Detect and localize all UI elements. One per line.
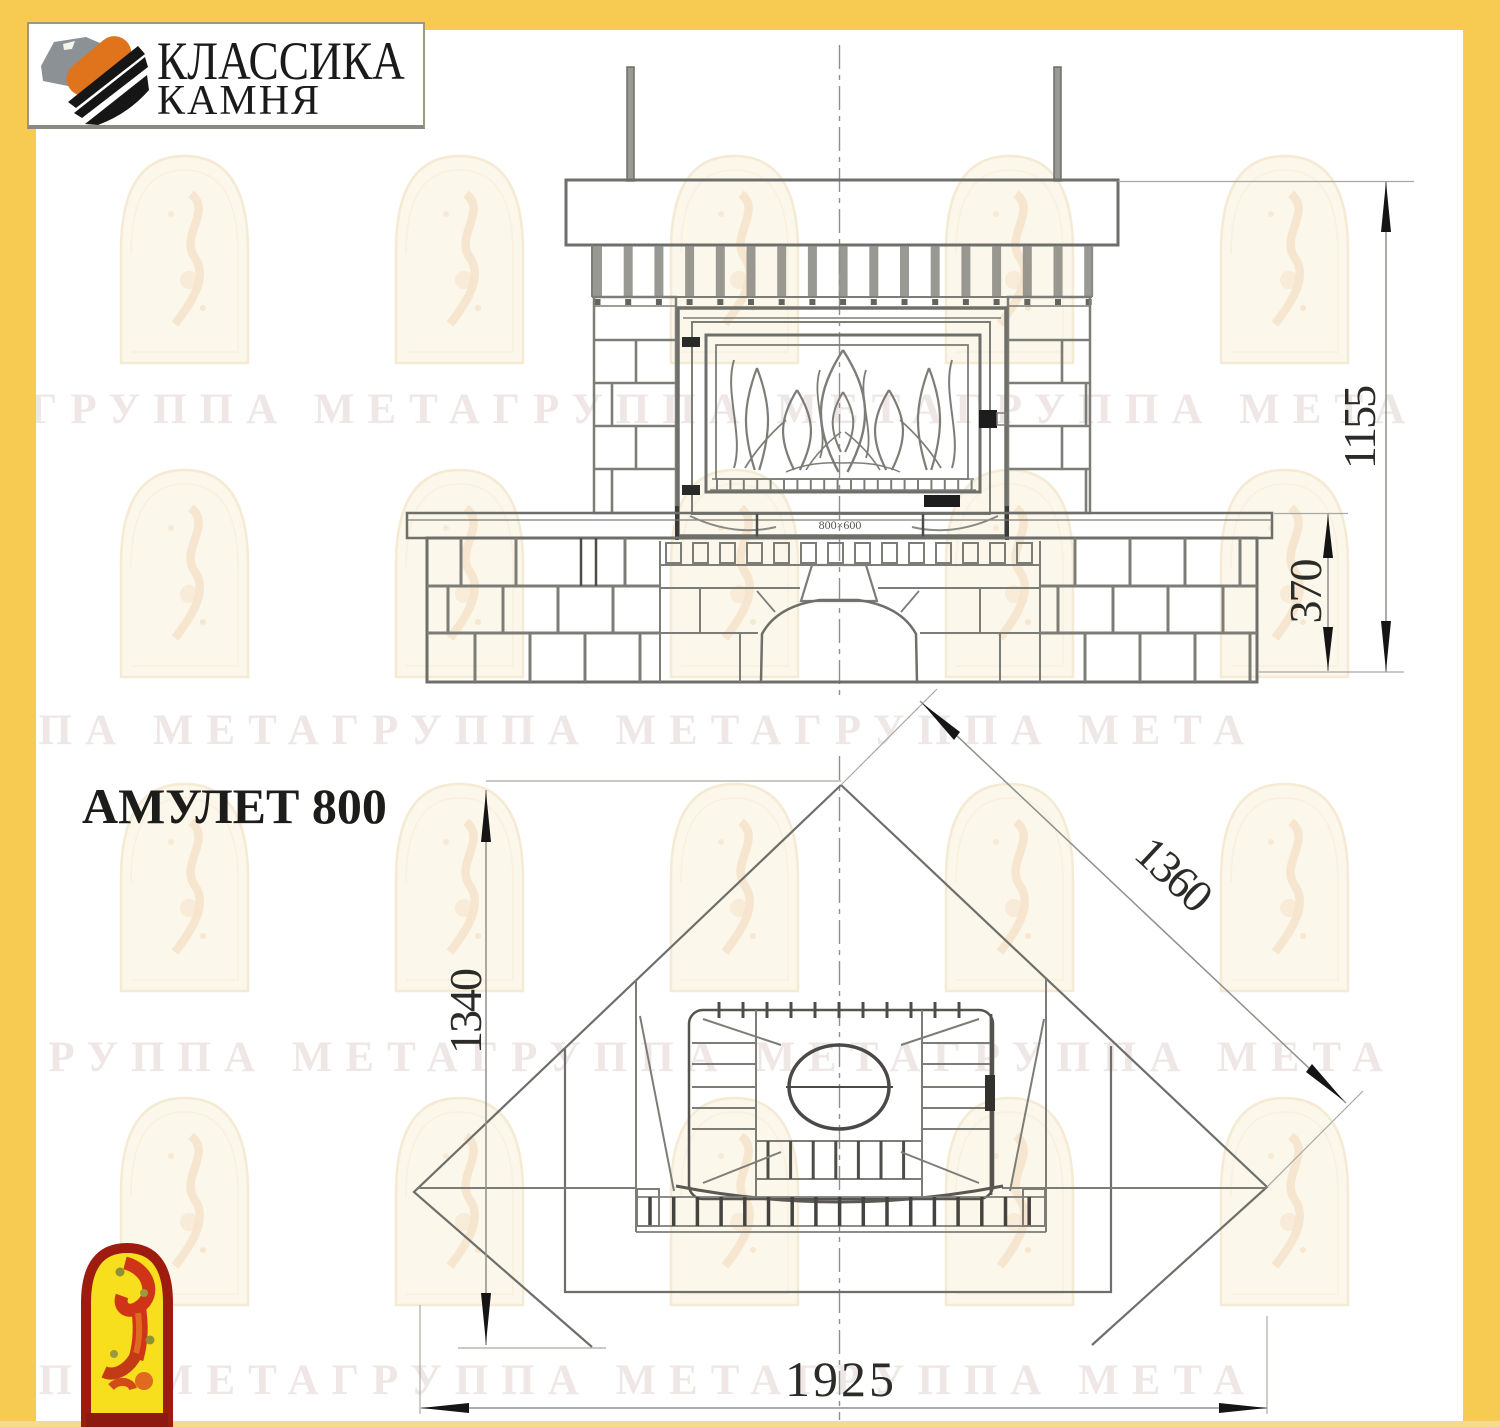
svg-text:370: 370 <box>1280 560 1331 624</box>
svg-text:1925: 1925 <box>785 1351 897 1407</box>
svg-text:1340: 1340 <box>440 969 491 1054</box>
svg-text:1360: 1360 <box>1125 826 1222 921</box>
svg-text:1155: 1155 <box>1334 386 1385 469</box>
svg-text:800×600: 800×600 <box>819 518 862 532</box>
